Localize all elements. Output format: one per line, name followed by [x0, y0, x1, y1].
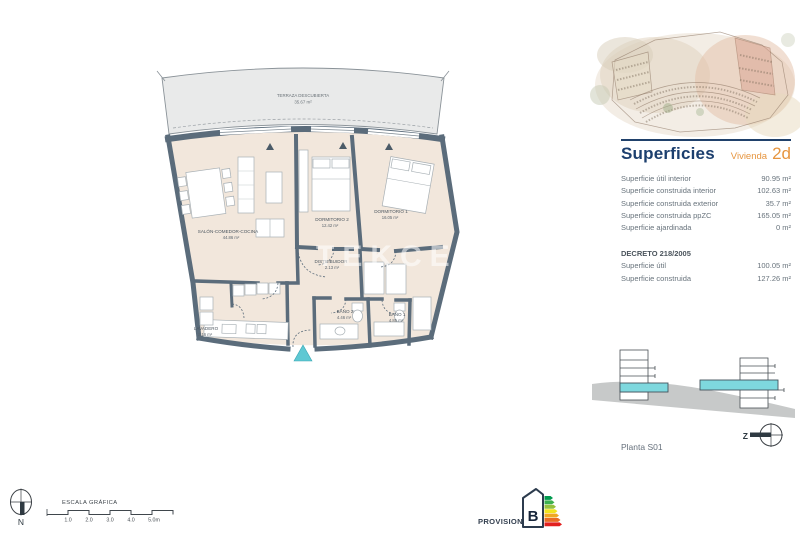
scale-tick: 3.0: [106, 518, 113, 524]
room-label: DORMITORIO 2: [315, 217, 349, 222]
energy-rating-letter: B: [528, 508, 539, 525]
room-area: 4.46 m²: [337, 315, 352, 320]
surfaces-panel: Superficies Vivienda 2d Superficie útil …: [621, 139, 791, 285]
north-compass: N: [10, 489, 32, 528]
surface-rows: Superficie útil interior 90.95 m² Superf…: [621, 173, 791, 234]
surface-row-label: Superficie construida exterior: [621, 198, 718, 210]
room-label: DORMITORIO 1: [374, 209, 408, 214]
surface-row: Superficie útil 100.05 m²: [621, 260, 791, 272]
panel-header: Superficies Vivienda 2d: [621, 144, 791, 164]
surface-row-label: Superficie ajardinada: [621, 222, 691, 234]
surface-row-value: 90.95 m²: [761, 173, 791, 185]
scale-tick: 4.0: [127, 518, 134, 524]
unit-info: Vivienda 2d: [731, 144, 791, 164]
scale-tick: 2.0: [85, 518, 92, 524]
surface-row: Superficie construida interior 102.63 m²: [621, 185, 791, 197]
section-compass-letter: Z: [743, 431, 748, 441]
surface-row: Superficie ajardinada 0 m²: [621, 222, 791, 234]
surface-row-label: Superficie útil: [621, 260, 666, 272]
surface-row-label: Superficie construida ppZC: [621, 210, 711, 222]
surface-row: Superficie construida exterior 35.7 m²: [621, 198, 791, 210]
unit-value: 2d: [772, 144, 791, 164]
surface-row-value: 100.05 m²: [757, 260, 791, 272]
surface-row: Superficie útil interior 90.95 m²: [621, 173, 791, 185]
surface-row-value: 102.63 m²: [757, 185, 791, 197]
section-compass: Z: [743, 423, 783, 447]
energy-scale-bars: [545, 496, 563, 526]
surface-row-value: 127.26 m²: [757, 273, 791, 285]
surface-row-value: 0 m²: [776, 222, 791, 234]
energy-label: B: [523, 489, 562, 527]
room-area: 2.16 m²: [198, 332, 213, 337]
surface-row-label: Superficie construida interior: [621, 185, 716, 197]
scale-tick: 5.0m: [148, 518, 160, 524]
building-sections: Planta S01 Z: [592, 350, 795, 452]
terrace: TERRAZA DESCUBIERTA 35.67 m²: [157, 68, 449, 134]
terrace-area: 35.67 m²: [294, 100, 312, 105]
floor-level-label: Planta S01: [621, 442, 663, 452]
surface-row-label: Superficie útil interior: [621, 173, 691, 185]
room-label: BAÑO 1: [389, 311, 406, 317]
panel-title: Superficies: [621, 144, 715, 164]
room-area: 4.85 m²: [389, 318, 404, 323]
surface-row-label: Superficie construida: [621, 273, 691, 285]
scale-title: ESCALA GRÁFICA: [62, 499, 118, 506]
room-label: BAÑO 2: [337, 308, 354, 314]
room-area: 12.42 m²: [322, 223, 339, 228]
panel-divider: [621, 139, 791, 141]
surface-row: Superficie construida ppZC 165.05 m²: [621, 210, 791, 222]
watermark: TEKCE: [316, 240, 458, 274]
room-label: LAVADERO: [194, 326, 219, 331]
decreto-rows: Superficie útil 100.05 m² Superficie con…: [621, 260, 791, 285]
terrace-label: TERRAZA DESCUBIERTA: [277, 93, 329, 98]
north-letter: N: [18, 517, 24, 527]
scale-tick: 1.0: [64, 518, 71, 524]
floor-plan: TERRAZA DESCUBIERTA 35.67 m²: [157, 68, 457, 361]
entrance-marker: [294, 345, 312, 361]
scale-bar: ESCALA GRÁFICA 1.0 2.0 3.0 4.0 5.0m: [47, 499, 173, 524]
unit-label: Vivienda: [731, 151, 767, 162]
decreto-heading: DECRETO 218/2005: [621, 247, 791, 260]
room-area: 16.05 m²: [382, 215, 399, 220]
surface-row: Superficie construida 127.26 m²: [621, 273, 791, 285]
watercolor-sketch: [590, 32, 800, 137]
surface-row-value: 35.7 m²: [766, 198, 791, 210]
room-area: 44.86 m²: [223, 235, 240, 240]
surface-row-value: 165.05 m²: [757, 210, 791, 222]
room-label: SALÓN-COMEDOR-COCINA: [198, 228, 259, 234]
